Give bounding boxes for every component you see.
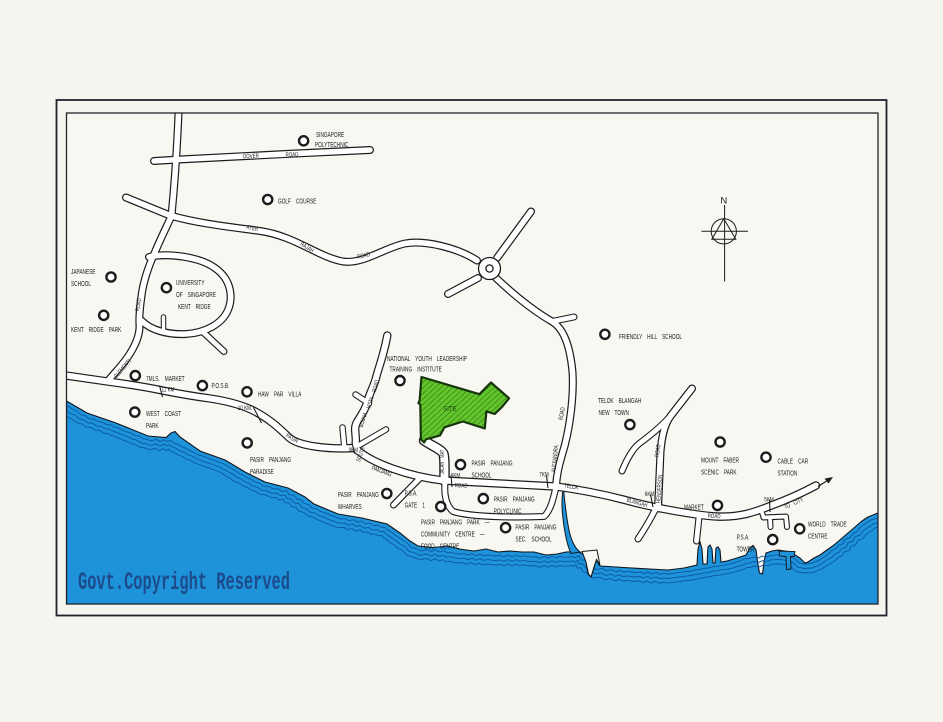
svg-text:ROAD: ROAD [285,152,298,159]
svg-text:POLYCLINIC: POLYCLINIC [494,509,522,516]
svg-text:SCHOOL: SCHOOL [71,281,92,288]
svg-text:OF SINGAPORE: OF SINGAPORE [176,292,216,299]
svg-text:HAW PAR VILLA: HAW PAR VILLA [258,392,301,399]
svg-text:PASIR PANJANG: PASIR PANJANG [338,492,379,499]
svg-text:NEW TOWN: NEW TOWN [599,410,629,417]
svg-text:WHARVES: WHARVES [338,504,362,511]
svg-text:JALAN MAT: JALAN MAT [439,450,446,475]
svg-text:DOVER: DOVER [243,153,259,160]
svg-text:N: N [720,196,727,207]
svg-text:9KM: 9KM [349,447,359,454]
svg-text:5KM: 5KM [764,497,774,504]
svg-text:FOOD CENTRE: FOOD CENTRE [421,544,459,551]
svg-text:11 KM: 11 KM [162,387,175,394]
svg-text:10 KM.: 10 KM. [238,405,253,412]
svg-text:SITE: SITE [443,405,456,413]
svg-text:ROAD: ROAD [707,513,720,520]
svg-text:PASIR PANJANG: PASIR PANJANG [472,461,513,468]
svg-text:WEST COAST: WEST COAST [146,411,181,418]
svg-text:COMMUNITY CENTRE —: COMMUNITY CENTRE — [421,532,485,539]
svg-text:STATION: STATION [778,471,798,478]
svg-text:6KM: 6KM [645,491,655,498]
svg-text:P.S.A.: P.S.A. [405,491,418,498]
svg-text:WORLD TRADE: WORLD TRADE [808,522,847,529]
svg-text:TOWER: TOWER [737,547,755,554]
svg-text:KENT RIDGE: KENT RIDGE [178,304,211,311]
svg-text:SEC. SCHOOL: SEC. SCHOOL [515,537,552,544]
svg-text:TELOK BLANGAH: TELOK BLANGAH [598,398,641,405]
svg-text:7MLS. MARKET: 7MLS. MARKET [146,376,185,383]
svg-text:PARK: PARK [146,423,159,430]
svg-text:8KM: 8KM [451,473,461,480]
svg-text:CENTRE: CENTRE [808,534,828,541]
svg-text:Govt.Copyright Reserved: Govt.Copyright Reserved [78,568,290,597]
svg-text:ROAD: ROAD [454,483,467,491]
svg-text:PASIR PANJANG: PASIR PANJANG [515,525,556,532]
svg-text:TRAINING INSTITUTE: TRAINING INSTITUTE [390,367,442,374]
svg-text:PASIR PANJANG: PASIR PANJANG [494,497,535,504]
svg-text:7KM: 7KM [539,472,549,479]
svg-text:SCENIC PARK: SCENIC PARK [701,470,737,477]
svg-text:GATE 1: GATE 1 [405,503,426,510]
svg-text:PARADISE: PARADISE [250,469,274,476]
svg-text:P.S.A.: P.S.A. [737,535,750,542]
svg-text:P.O.S.B.: P.O.S.B. [212,383,230,390]
svg-text:MOUNT FABER: MOUNT FABER [701,458,739,465]
svg-text:SCHOOL: SCHOOL [472,473,493,480]
svg-text:MARKET: MARKET [684,505,704,512]
svg-text:PASIR PANJANG: PASIR PANJANG [250,457,291,464]
svg-text:CABLE CAR: CABLE CAR [778,459,809,466]
svg-text:SINGAPORE: SINGAPORE [316,132,344,139]
svg-text:JAPANESE: JAPANESE [71,269,95,276]
svg-text:GOLF COURSE: GOLF COURSE [278,199,316,206]
svg-text:NATIONAL YOUTH LEADERSHIP: NATIONAL YOUTH LEADERSHIP [387,356,467,363]
svg-text:UNIVERSITY: UNIVERSITY [176,280,204,287]
svg-text:KENT RIDGE PARK: KENT RIDGE PARK [71,327,121,334]
svg-text:POLYTECHNIC: POLYTECHNIC [315,142,349,149]
svg-text:PASIR PANJANG PARK —: PASIR PANJANG PARK — [421,520,489,527]
svg-text:FRIENDLY HILL SCHOOL: FRIENDLY HILL SCHOOL [619,334,683,341]
